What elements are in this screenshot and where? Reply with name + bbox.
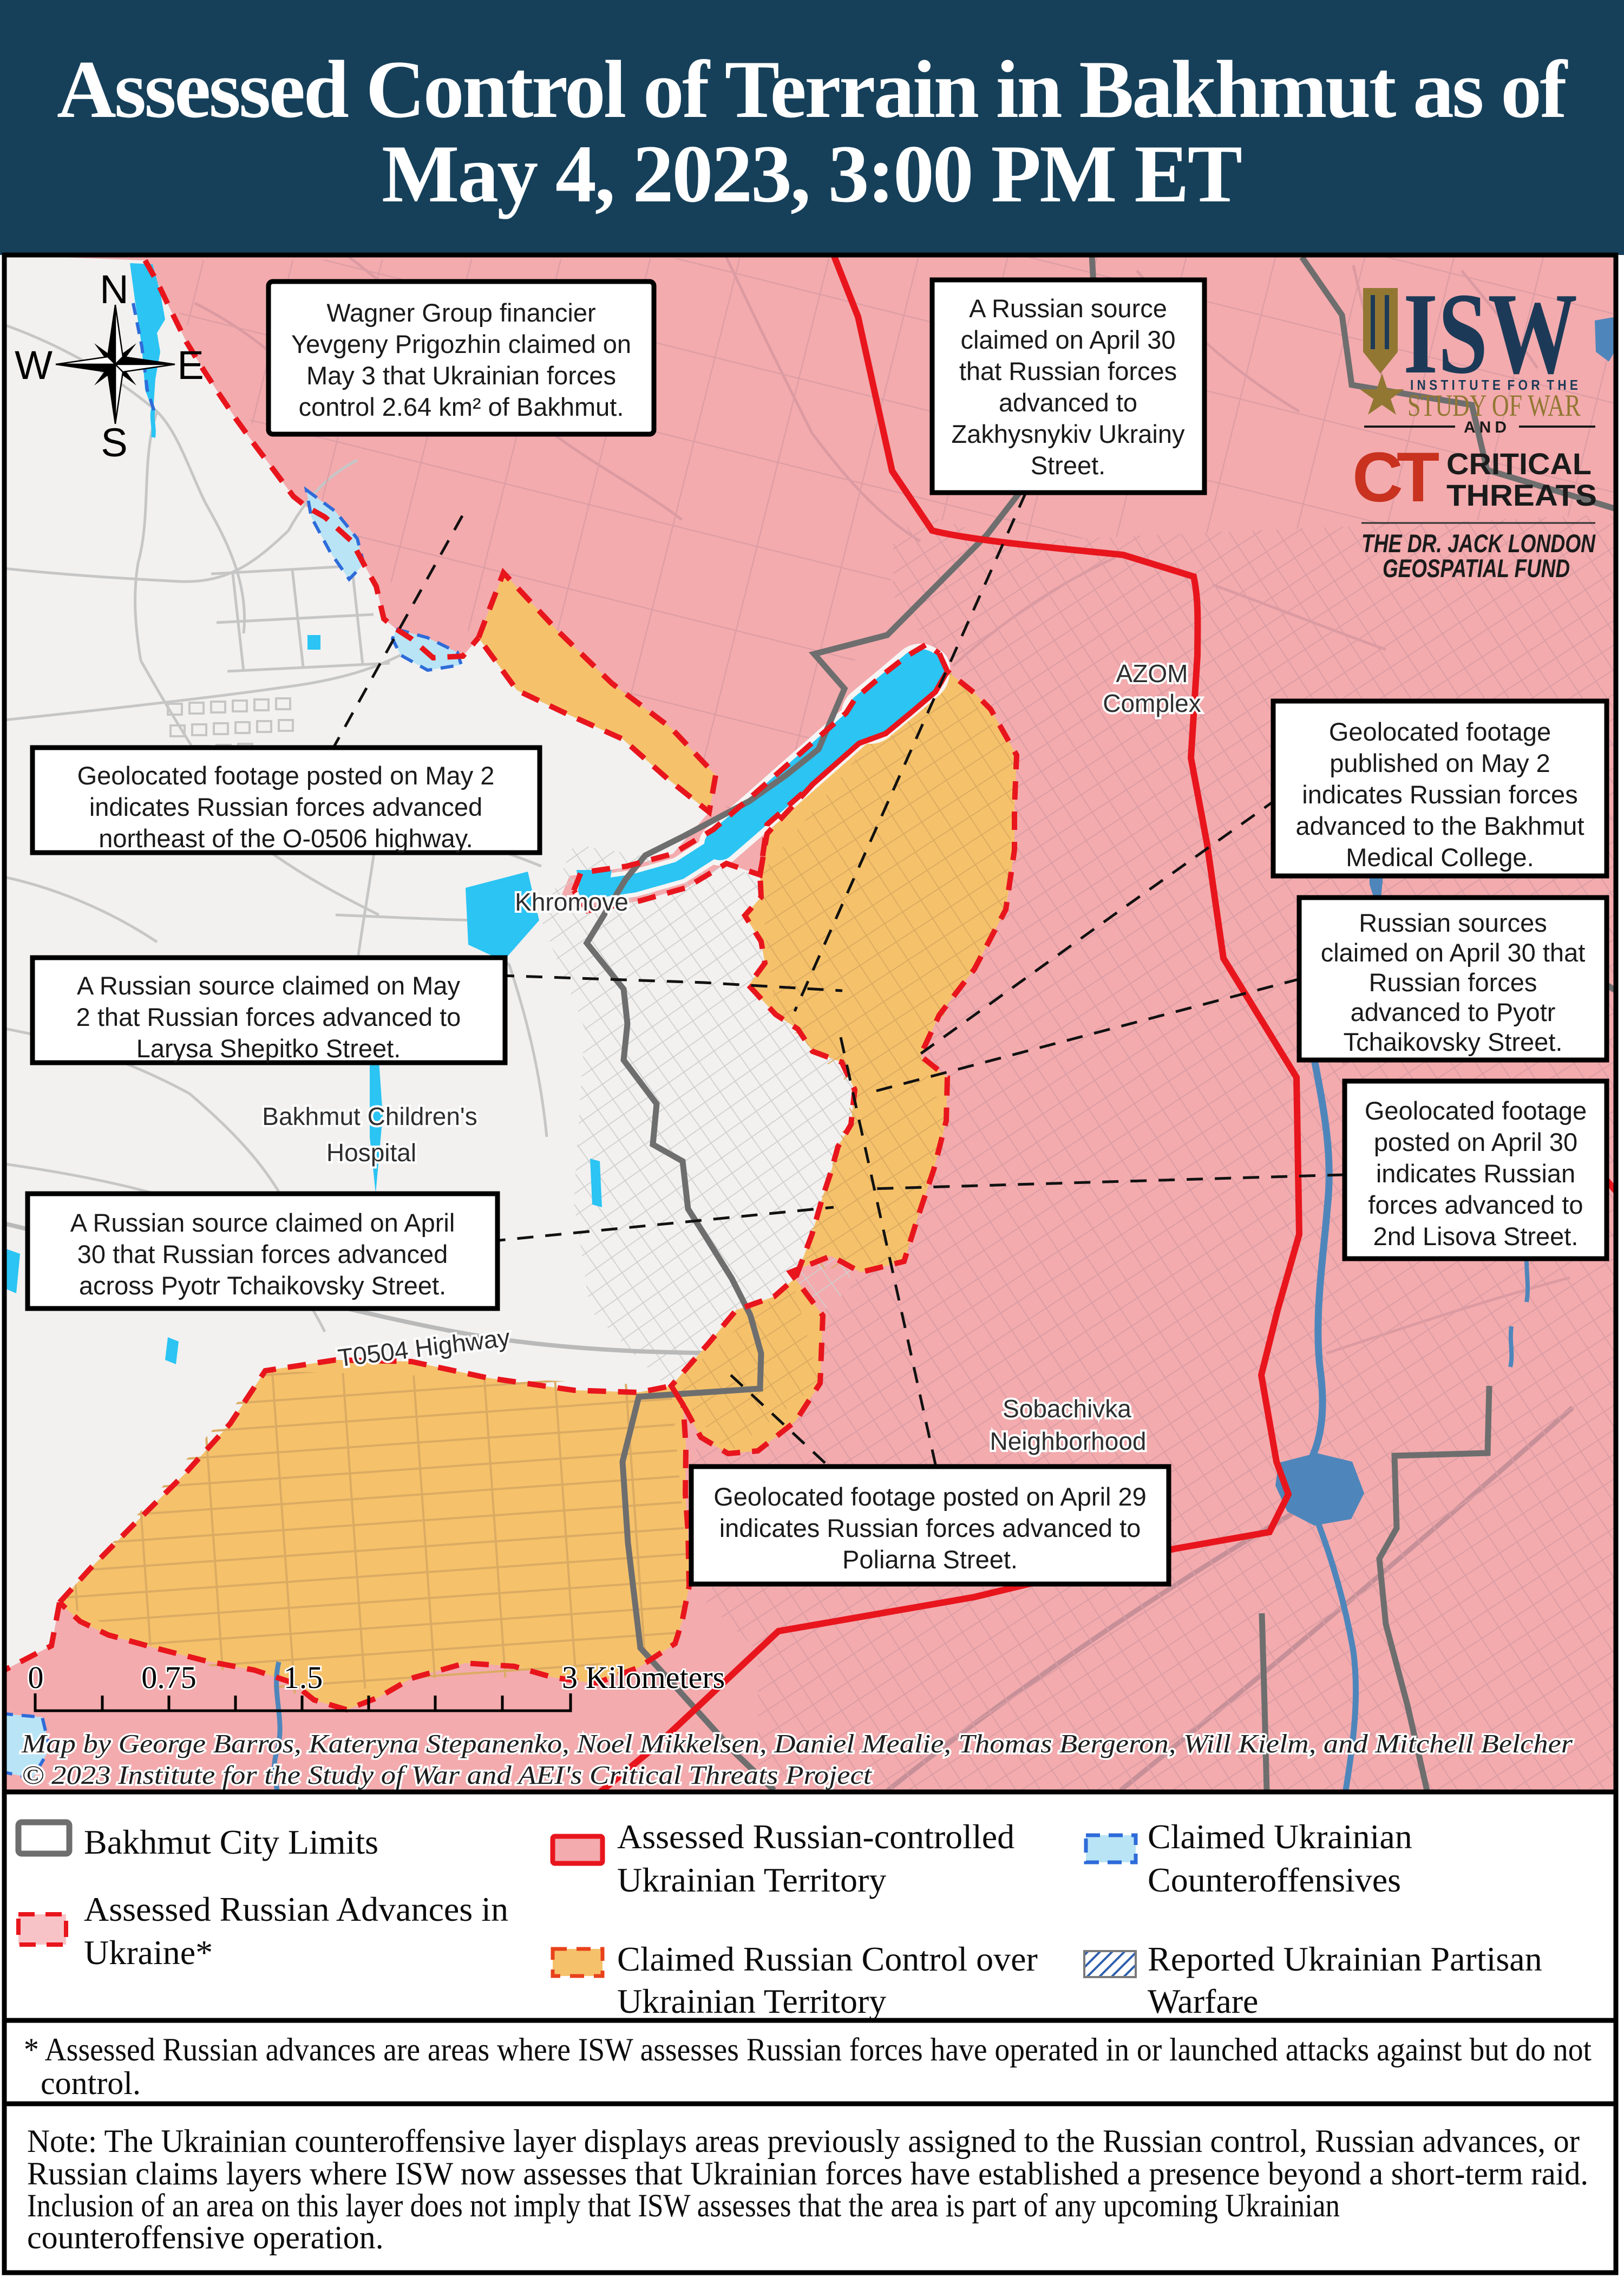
svg-text:Claimed Ukrainian: Claimed Ukrainian xyxy=(1148,1817,1412,1856)
svg-text:Inclusion of an area on this l: Inclusion of an area on this layer does … xyxy=(27,2188,1340,2223)
svg-text:control 2.64 km² of Bakhmut.: control 2.64 km² of Bakhmut. xyxy=(299,392,624,421)
svg-text:Assessed Control of Terrain in: Assessed Control of Terrain in Bakhmut a… xyxy=(57,44,1568,135)
svg-text:Geolocated footage posted on A: Geolocated footage posted on April 29 xyxy=(713,1482,1147,1511)
svg-text:AZOM: AZOM xyxy=(1116,659,1188,688)
svg-text:advanced to: advanced to xyxy=(999,388,1137,417)
svg-text:Geolocated footage: Geolocated footage xyxy=(1329,717,1551,746)
svg-text:30 that Russian forces advance: 30 that Russian forces advanced xyxy=(77,1240,448,1268)
svg-text:Geolocated footage: Geolocated footage xyxy=(1365,1096,1587,1125)
svg-text:control.: control. xyxy=(41,2065,141,2101)
svg-text:indicates Russian forces advan: indicates Russian forces advanced to xyxy=(719,1514,1141,1542)
svg-text:Ukrainian Territory: Ukrainian Territory xyxy=(617,1861,886,1899)
svg-text:forces advanced to: forces advanced to xyxy=(1368,1190,1583,1219)
svg-text:Ukraine*: Ukraine* xyxy=(84,1933,213,1972)
svg-text:2 that Russian forces advanced: 2 that Russian forces advanced to xyxy=(76,1003,461,1031)
svg-text:Assessed Russian Advances in: Assessed Russian Advances in xyxy=(84,1890,508,1928)
svg-text:indicates Russian forces advan: indicates Russian forces advanced xyxy=(89,793,482,821)
svg-text:Neighborhood: Neighborhood xyxy=(990,1427,1146,1455)
svg-text:indicates Russian forces: indicates Russian forces xyxy=(1302,780,1577,809)
svg-text:Note: The Ukrainian counteroff: Note: The Ukrainian counteroffensive lay… xyxy=(27,2123,1580,2159)
svg-text:Complex: Complex xyxy=(1103,689,1201,717)
svg-text:1.5: 1.5 xyxy=(284,1660,323,1695)
svg-text:posted on April 30: posted on April 30 xyxy=(1374,1128,1577,1156)
svg-text:Counteroffensives: Counteroffensives xyxy=(1148,1861,1401,1899)
svg-text:May 4, 2023, 3:00 PM ET: May 4, 2023, 3:00 PM ET xyxy=(382,128,1242,219)
svg-text:A Russian source claimed on Ap: A Russian source claimed on April xyxy=(70,1208,455,1237)
svg-text:0: 0 xyxy=(28,1660,44,1695)
svg-text:Wagner Group financier: Wagner Group financier xyxy=(326,298,595,327)
svg-text:Medical College.: Medical College. xyxy=(1346,843,1534,872)
svg-text:Larysa Shepitko Street.: Larysa Shepitko Street. xyxy=(136,1034,401,1063)
svg-text:advanced to Pyotr: advanced to Pyotr xyxy=(1351,998,1556,1026)
svg-text:Assessed Russian-controlled: Assessed Russian-controlled xyxy=(617,1817,1014,1856)
svg-text:Street.: Street. xyxy=(1031,451,1105,480)
svg-text:Tchaikovsky Street.: Tchaikovsky Street. xyxy=(1344,1028,1563,1056)
svg-text:GEOSPATIAL FUND: GEOSPATIAL FUND xyxy=(1383,554,1570,583)
svg-text:2nd Lisova Street.: 2nd Lisova Street. xyxy=(1373,1222,1579,1251)
svg-text:CRITICAL: CRITICAL xyxy=(1446,447,1592,481)
svg-text:E: E xyxy=(177,343,204,388)
svg-text:Yevgeny Prigozhin claimed on: Yevgeny Prigozhin claimed on xyxy=(291,330,631,358)
svg-text:0.75: 0.75 xyxy=(141,1660,197,1695)
svg-text:indicates Russian: indicates Russian xyxy=(1376,1159,1575,1188)
svg-text:counteroffensive operation.: counteroffensive operation. xyxy=(27,2220,384,2255)
svg-text:Bakhmut Children's: Bakhmut Children's xyxy=(262,1102,477,1130)
svg-text:W: W xyxy=(15,343,53,388)
svg-text:Map by George Barros, Kateryna: Map by George Barros, Kateryna Stepanenk… xyxy=(21,1729,1573,1758)
svg-text:Hospital: Hospital xyxy=(326,1139,416,1167)
svg-text:* Assessed Russian advances ar: * Assessed Russian advances are areas wh… xyxy=(24,2032,1592,2067)
svg-text:THREATS: THREATS xyxy=(1446,478,1597,512)
svg-text:Reported Ukrainian Partisan: Reported Ukrainian Partisan xyxy=(1148,1940,1542,1978)
svg-text:S: S xyxy=(101,420,127,465)
svg-text:claimed on April 30 that: claimed on April 30 that xyxy=(1321,938,1586,967)
svg-text:Ukrainian Territory: Ukrainian Territory xyxy=(617,1982,886,2020)
svg-text:Khromove: Khromove xyxy=(515,888,628,916)
svg-text:© 2023 Institute for the Study: © 2023 Institute for the Study of War an… xyxy=(22,1760,873,1790)
svg-text:published on May 2: published on May 2 xyxy=(1330,749,1550,777)
svg-text:Poliarna Street.: Poliarna Street. xyxy=(842,1545,1018,1574)
svg-text:May 3 that Ukrainian forces: May 3 that Ukrainian forces xyxy=(306,361,616,390)
svg-text:advanced to the Bakhmut: advanced to the Bakhmut xyxy=(1295,812,1584,840)
svg-text:AND: AND xyxy=(1464,418,1510,436)
svg-text:STUDY OF WAR: STUDY OF WAR xyxy=(1407,389,1581,423)
svg-text:A Russian source claimed on Ma: A Russian source claimed on May xyxy=(77,971,460,1000)
svg-text:Claimed Russian Control over: Claimed Russian Control over xyxy=(617,1940,1038,1978)
svg-text:Russian sources: Russian sources xyxy=(1359,908,1547,937)
svg-text:N: N xyxy=(100,267,128,312)
svg-text:A Russian source: A Russian source xyxy=(969,294,1167,323)
svg-text:Russian claims layers where IS: Russian claims layers where ISW now asse… xyxy=(27,2156,1588,2191)
svg-text:Geolocated footage posted on M: Geolocated footage posted on May 2 xyxy=(77,761,495,790)
svg-text:claimed on April 30: claimed on April 30 xyxy=(960,325,1175,354)
svg-text:across Pyotr Tchaikovsky Stree: across Pyotr Tchaikovsky Street. xyxy=(79,1271,446,1300)
svg-text:Bakhmut City Limits: Bakhmut City Limits xyxy=(84,1823,378,1861)
svg-text:that Russian forces: that Russian forces xyxy=(959,357,1177,385)
svg-text:Zakhysnykiv Ukrainy: Zakhysnykiv Ukrainy xyxy=(952,420,1185,448)
svg-text:Russian forces: Russian forces xyxy=(1369,968,1537,997)
svg-text:3 Kilometers: 3 Kilometers xyxy=(562,1660,725,1695)
svg-text:northeast of the O-0506 highwa: northeast of the O-0506 highway. xyxy=(99,824,473,853)
svg-text:Sobachivka: Sobachivka xyxy=(1003,1395,1131,1423)
svg-text:Warfare: Warfare xyxy=(1148,1982,1258,2020)
svg-text:CT: CT xyxy=(1352,437,1439,516)
